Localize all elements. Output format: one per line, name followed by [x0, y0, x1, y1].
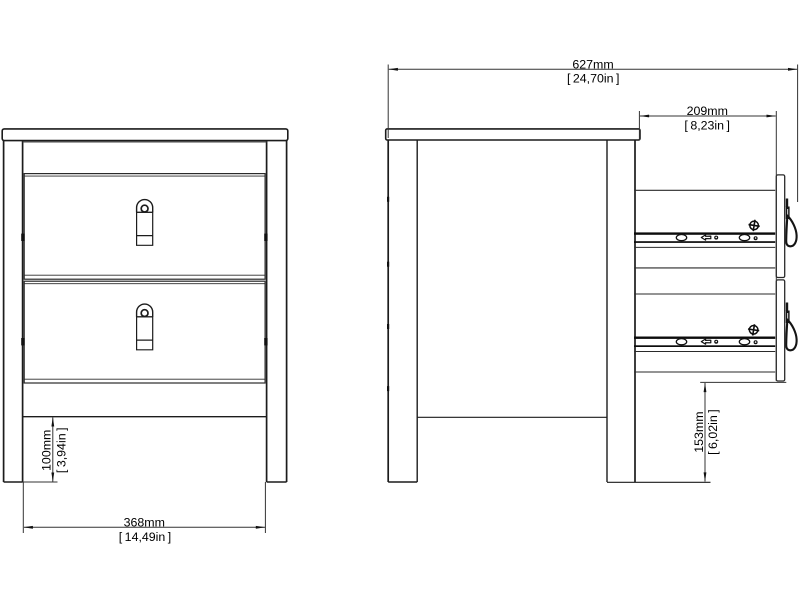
svg-text:[ 6,02in ]: [ 6,02in ] [706, 409, 720, 455]
svg-text:[ 24,70in ]: [ 24,70in ] [567, 72, 620, 86]
svg-text:[ 14,49in ]: [ 14,49in ] [119, 530, 172, 544]
svg-text:153mm: 153mm [692, 411, 706, 452]
svg-text:209mm: 209mm [687, 104, 728, 118]
svg-text:368mm: 368mm [124, 515, 165, 529]
svg-text:[ 3,94in ]: [ 3,94in ] [54, 427, 68, 473]
svg-text:627mm: 627mm [572, 57, 613, 71]
svg-text:100mm: 100mm [39, 430, 53, 471]
svg-text:[ 8,23in ]: [ 8,23in ] [684, 118, 730, 132]
